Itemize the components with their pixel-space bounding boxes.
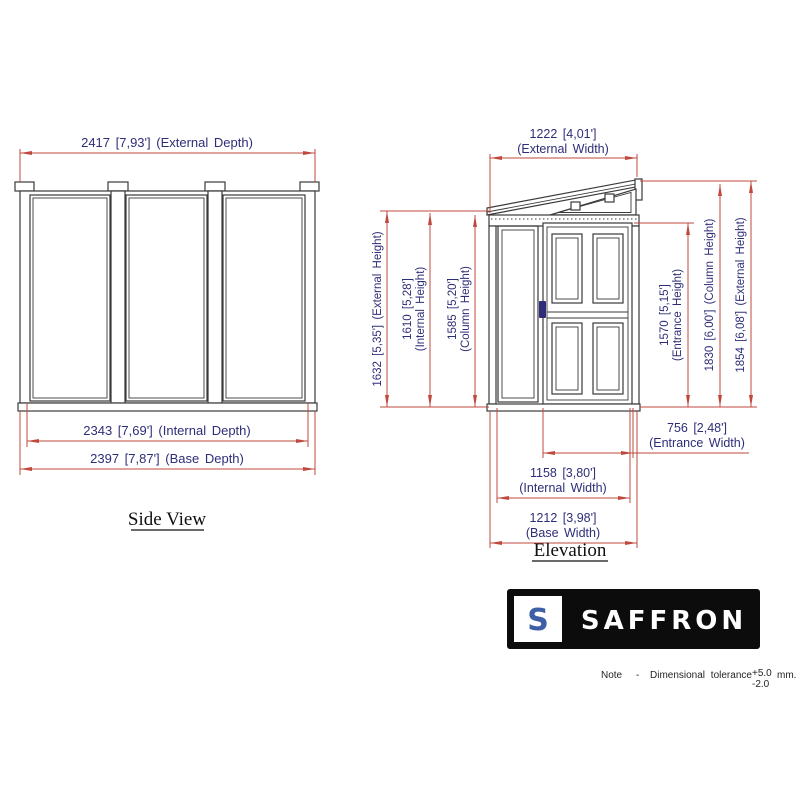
technical-drawing: 2417 [7,93'] (External Depth) 2343 [7,69… (0, 0, 800, 800)
elevation: 1222 [4,01'] (External Width) 1632 [5,35… (372, 127, 757, 561)
dim-base-width-value: 1212 [3,98'] (530, 511, 597, 525)
dim-entrance-width-value: 756 [2,48'] (667, 421, 727, 435)
dim-external-height-right: 1854 [6,08'] (External Height) (735, 181, 751, 407)
drawing-page: 2417 [7,93'] (External Depth) 2343 [7,69… (0, 0, 800, 800)
dim-base-depth-label: 2397 [7,87'] (Base Depth) (90, 451, 244, 466)
dim-heights-right: 1570 [5,15'] (Entrance Height) 1830 [6,0… (634, 181, 757, 407)
side-view-post-cap (205, 182, 225, 191)
dim-base-depth: 2397 [7,87'] (Base Depth) (20, 411, 315, 475)
door-handle (539, 301, 546, 318)
dim-column-height-left: 1585 [5,20'] (Column Height) (447, 215, 475, 407)
dim-column-height-right: 1830 [6,00'] (Column Height) (704, 184, 720, 407)
side-view-post-cap (108, 182, 128, 191)
side-view-shed (15, 182, 319, 411)
dim-external-width-label: (External Width) (517, 142, 609, 156)
dim-entrance-height: 1570 [5,15'] (Entrance Height) (659, 223, 688, 407)
logo-monogram: S (527, 603, 549, 638)
door (539, 223, 632, 404)
note-unit: mm. (777, 670, 796, 681)
dim-external-width-value: 1222 [4,01'] (530, 127, 597, 141)
dim-external-depth: 2417 [7,93'] (External Depth) (20, 135, 315, 182)
elevation-louver-panel (498, 226, 538, 402)
dim-entrance-height-value: 1570 [5,15'] (659, 284, 671, 346)
dim-column-height-right-label: 1830 [6,00'] (Column Height) (704, 219, 716, 372)
dim-external-depth-label: 2417 [7,93'] (External Depth) (81, 135, 253, 150)
side-view-caption: Side View (128, 509, 206, 530)
note-text: Dimensional tolerance (650, 670, 752, 681)
note-tolerance-minus: -2.0 (752, 679, 770, 690)
note-label: Note (601, 670, 623, 681)
dim-heights-left: 1632 [5,35'] (External Height) 1610 [5,2… (372, 211, 489, 407)
tolerance-note: Note - Dimensional tolerance +5.0 -2.0 m… (601, 668, 796, 690)
elevation-shed (487, 179, 642, 411)
elevation-caption: Elevation (534, 540, 607, 561)
dim-column-height-left-label: (Column Height) (460, 266, 472, 352)
side-view-corner-cap (300, 182, 319, 191)
wall-trim-left (489, 226, 496, 404)
dim-entrance-height-label: (Entrance Height) (672, 269, 684, 361)
dim-external-height-left-label: 1632 [5,35'] (External Height) (372, 231, 384, 386)
side-view: 2417 [7,93'] (External Depth) 2343 [7,69… (15, 135, 319, 530)
roof-block (605, 194, 614, 202)
elevation-base (487, 404, 640, 411)
dim-column-height-left-value: 1585 [5,20'] (447, 278, 459, 340)
side-view-post (111, 191, 125, 403)
dim-external-height-left: 1632 [5,35'] (External Height) (372, 211, 387, 407)
dim-internal-height-value: 1610 [5,28'] (402, 278, 414, 340)
dim-internal-width-value: 1158 [3,80'] (530, 466, 596, 480)
dim-internal-width-label: (Internal Width) (519, 481, 606, 495)
side-view-wall-frame (20, 191, 315, 403)
dim-base-width-label: (Base Width) (526, 526, 600, 540)
dim-internal-depth-label: 2343 [7,69'] (Internal Depth) (83, 423, 250, 438)
dim-entrance-width: 756 [2,48'] (Entrance Width) (543, 408, 749, 458)
note-dash: - (636, 670, 639, 681)
dim-internal-height: 1610 [5,28'] (Internal Height) (402, 213, 430, 407)
logo-brand-text: SAFFRON (581, 606, 747, 636)
roof-block (571, 202, 580, 210)
dim-internal-height-label: (Internal Height) (415, 267, 427, 352)
note-tolerance-plus: +5.0 (752, 668, 772, 679)
dim-external-height-right-label: 1854 [6,08'] (External Height) (735, 217, 747, 372)
side-view-base (18, 403, 317, 411)
side-view-post (208, 191, 222, 403)
saffron-logo: S SAFFRON (507, 589, 760, 649)
side-view-corner-cap (15, 182, 34, 191)
dim-entrance-width-label: (Entrance Width) (649, 436, 745, 450)
dim-internal-width: 1158 [3,80'] (Internal Width) (497, 408, 630, 503)
